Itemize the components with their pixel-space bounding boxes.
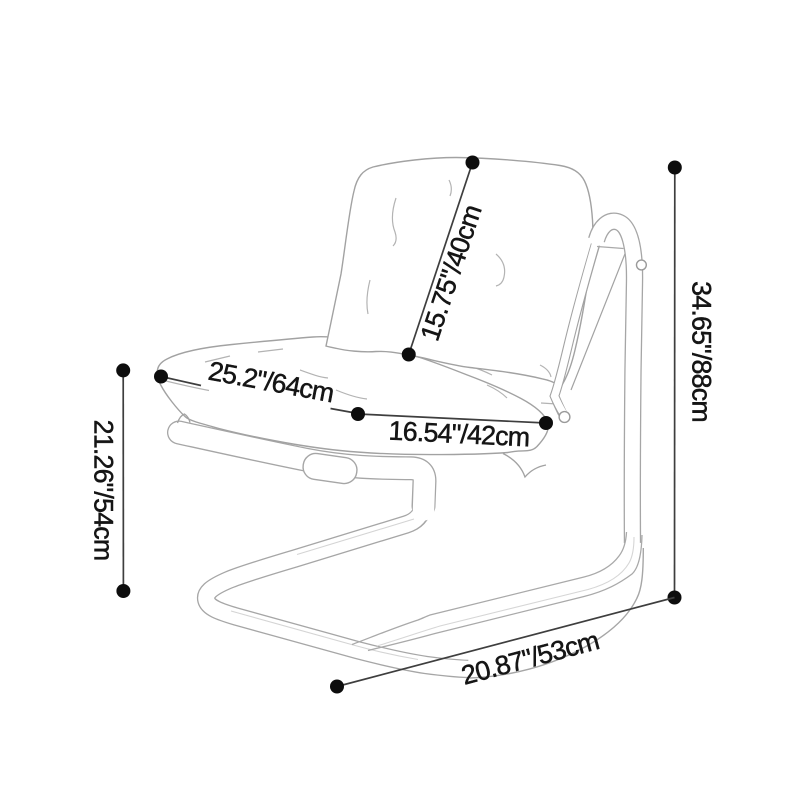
svg-text:34.65"/88cm: 34.65"/88cm	[687, 281, 717, 422]
svg-text:21.26"/54cm: 21.26"/54cm	[89, 420, 119, 561]
